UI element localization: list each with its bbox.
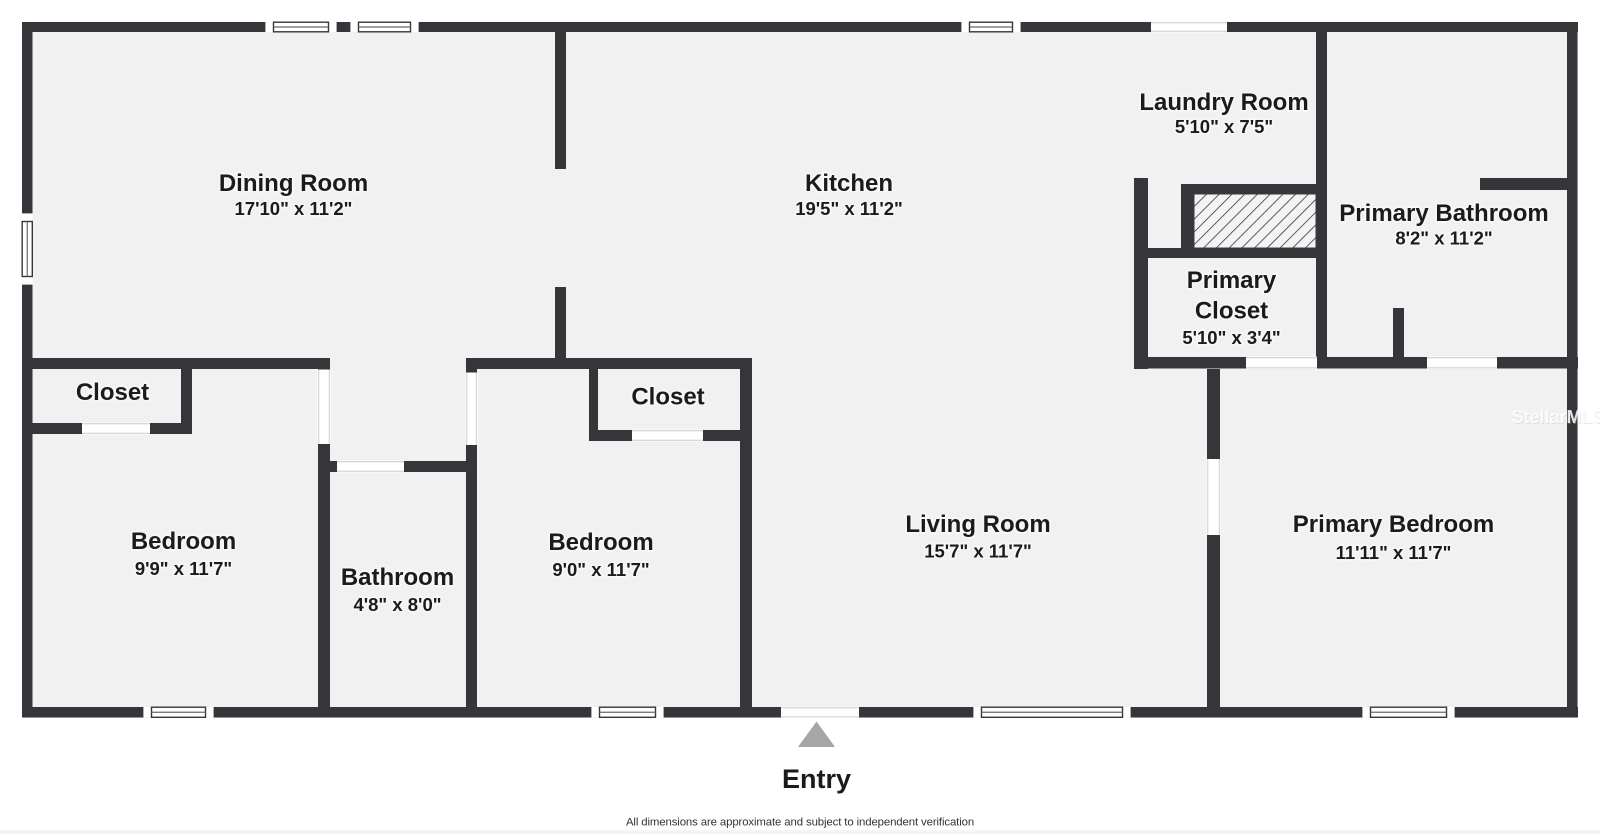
- svg-text:4'8" x 8'0": 4'8" x 8'0": [353, 594, 441, 615]
- svg-text:9'9" x 11'7": 9'9" x 11'7": [135, 558, 232, 579]
- svg-text:Closet: Closet: [76, 379, 149, 406]
- svg-text:5'10" x 3'4": 5'10" x 3'4": [1182, 327, 1280, 348]
- svg-text:Closet: Closet: [1195, 298, 1268, 325]
- svg-text:Laundry Room: Laundry Room: [1139, 89, 1308, 116]
- svg-text:8'2" x 11'2": 8'2" x 11'2": [1395, 228, 1492, 249]
- svg-text:11'11" x 11'7": 11'11" x 11'7": [1336, 542, 1452, 563]
- svg-text:Bedroom: Bedroom: [131, 528, 236, 555]
- svg-text:19'5" x 11'2": 19'5" x 11'2": [795, 198, 903, 219]
- svg-text:Dining Room: Dining Room: [219, 170, 368, 197]
- svg-text:Primary Bedroom: Primary Bedroom: [1293, 511, 1494, 538]
- svg-text:Closet: Closet: [631, 384, 704, 411]
- svg-text:5'10" x 7'5": 5'10" x 7'5": [1175, 116, 1273, 137]
- svg-text:Primary: Primary: [1187, 267, 1277, 294]
- svg-text:StellarMLS: StellarMLS: [1511, 407, 1600, 427]
- svg-text:17'10" x 11'2": 17'10" x 11'2": [235, 198, 353, 219]
- svg-text:Living Room: Living Room: [905, 511, 1050, 538]
- svg-text:Bedroom: Bedroom: [548, 529, 653, 556]
- svg-text:Bathroom: Bathroom: [341, 564, 454, 591]
- svg-text:Kitchen: Kitchen: [805, 170, 893, 197]
- svg-text:Entry: Entry: [782, 764, 851, 794]
- svg-text:9'0" x 11'7": 9'0" x 11'7": [552, 559, 649, 580]
- svg-text:All dimensions are approximate: All dimensions are approximate and subje…: [626, 817, 974, 829]
- svg-text:Primary Bathroom: Primary Bathroom: [1339, 200, 1548, 227]
- svg-text:15'7" x 11'7": 15'7" x 11'7": [924, 541, 1032, 562]
